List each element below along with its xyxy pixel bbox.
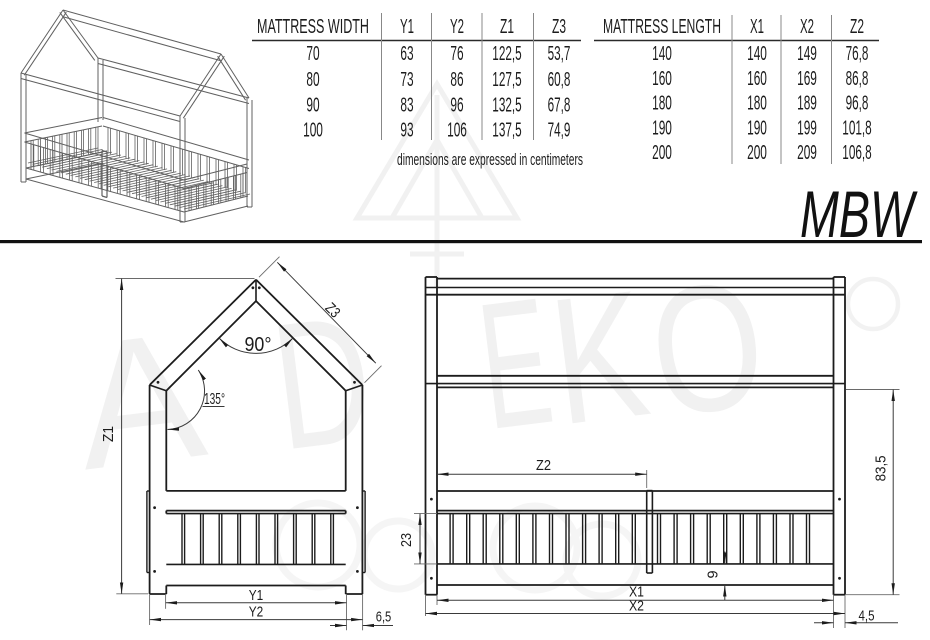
svg-text:76,8: 76,8 bbox=[846, 43, 869, 65]
svg-text:93: 93 bbox=[400, 120, 413, 142]
svg-text:Z1: Z1 bbox=[100, 426, 117, 442]
svg-text:76: 76 bbox=[450, 43, 463, 65]
svg-text:23: 23 bbox=[398, 533, 415, 547]
svg-text:180: 180 bbox=[652, 93, 672, 115]
svg-text:63: 63 bbox=[400, 43, 413, 65]
svg-text:122,5: 122,5 bbox=[492, 43, 521, 65]
svg-text:189: 189 bbox=[797, 93, 817, 115]
svg-text:140: 140 bbox=[747, 43, 767, 65]
svg-text:137,5: 137,5 bbox=[492, 120, 521, 142]
svg-text:Y2: Y2 bbox=[249, 603, 264, 620]
svg-text:Y1: Y1 bbox=[249, 587, 264, 604]
svg-text:Z2: Z2 bbox=[850, 16, 864, 38]
svg-text:9: 9 bbox=[704, 571, 721, 579]
svg-text:Z1: Z1 bbox=[500, 16, 514, 38]
svg-text:209: 209 bbox=[797, 142, 817, 164]
svg-text:MATTRESS LENGTH: MATTRESS LENGTH bbox=[603, 16, 721, 38]
svg-text:Z2: Z2 bbox=[536, 457, 551, 474]
svg-text:106: 106 bbox=[447, 120, 467, 142]
svg-text:96,8: 96,8 bbox=[846, 93, 869, 115]
svg-text:MATTRESS WIDTH: MATTRESS WIDTH bbox=[257, 16, 369, 38]
svg-text:135°: 135° bbox=[204, 391, 225, 408]
svg-text:dimensions are expressed in ce: dimensions are expressed in centimeters bbox=[397, 151, 583, 169]
svg-text:Z3: Z3 bbox=[552, 16, 566, 38]
svg-text:83,5: 83,5 bbox=[872, 455, 889, 481]
svg-text:199: 199 bbox=[797, 118, 817, 140]
svg-text:74,9: 74,9 bbox=[548, 120, 571, 142]
svg-text:60,8: 60,8 bbox=[548, 69, 571, 91]
svg-text:67,8: 67,8 bbox=[548, 95, 571, 117]
svg-text:200: 200 bbox=[652, 142, 672, 164]
svg-text:X2: X2 bbox=[629, 598, 644, 615]
svg-text:190: 190 bbox=[747, 118, 767, 140]
svg-text:160: 160 bbox=[747, 68, 767, 90]
svg-text:X2: X2 bbox=[800, 16, 814, 38]
svg-text:149: 149 bbox=[797, 43, 817, 65]
svg-text:169: 169 bbox=[797, 68, 817, 90]
svg-text:Y1: Y1 bbox=[400, 16, 414, 38]
svg-text:200: 200 bbox=[747, 142, 767, 164]
svg-text:73: 73 bbox=[400, 69, 413, 91]
svg-text:6,5: 6,5 bbox=[376, 609, 392, 626]
svg-text:90°: 90° bbox=[245, 334, 272, 356]
svg-text:MBW: MBW bbox=[800, 177, 918, 251]
svg-text:80: 80 bbox=[306, 69, 319, 91]
svg-text:83: 83 bbox=[400, 95, 413, 117]
svg-text:86,8: 86,8 bbox=[846, 68, 869, 90]
svg-text:180: 180 bbox=[747, 93, 767, 115]
svg-text:101,8: 101,8 bbox=[842, 118, 871, 140]
svg-text:4,5: 4,5 bbox=[859, 607, 875, 624]
svg-text:X1: X1 bbox=[750, 16, 764, 38]
svg-text:86: 86 bbox=[450, 69, 463, 91]
svg-text:53,7: 53,7 bbox=[548, 43, 571, 65]
svg-text:160: 160 bbox=[652, 68, 672, 90]
svg-text:Y2: Y2 bbox=[450, 16, 464, 38]
svg-text:100: 100 bbox=[303, 120, 323, 142]
svg-text:70: 70 bbox=[306, 43, 319, 65]
svg-text:140: 140 bbox=[652, 43, 672, 65]
svg-text:A: A bbox=[65, 294, 214, 509]
svg-text:106,8: 106,8 bbox=[842, 142, 871, 164]
svg-text:96: 96 bbox=[450, 95, 463, 117]
svg-text:127,5: 127,5 bbox=[492, 69, 521, 91]
svg-text:132,5: 132,5 bbox=[492, 95, 521, 117]
svg-text:190: 190 bbox=[652, 118, 672, 140]
svg-text:90: 90 bbox=[306, 95, 319, 117]
